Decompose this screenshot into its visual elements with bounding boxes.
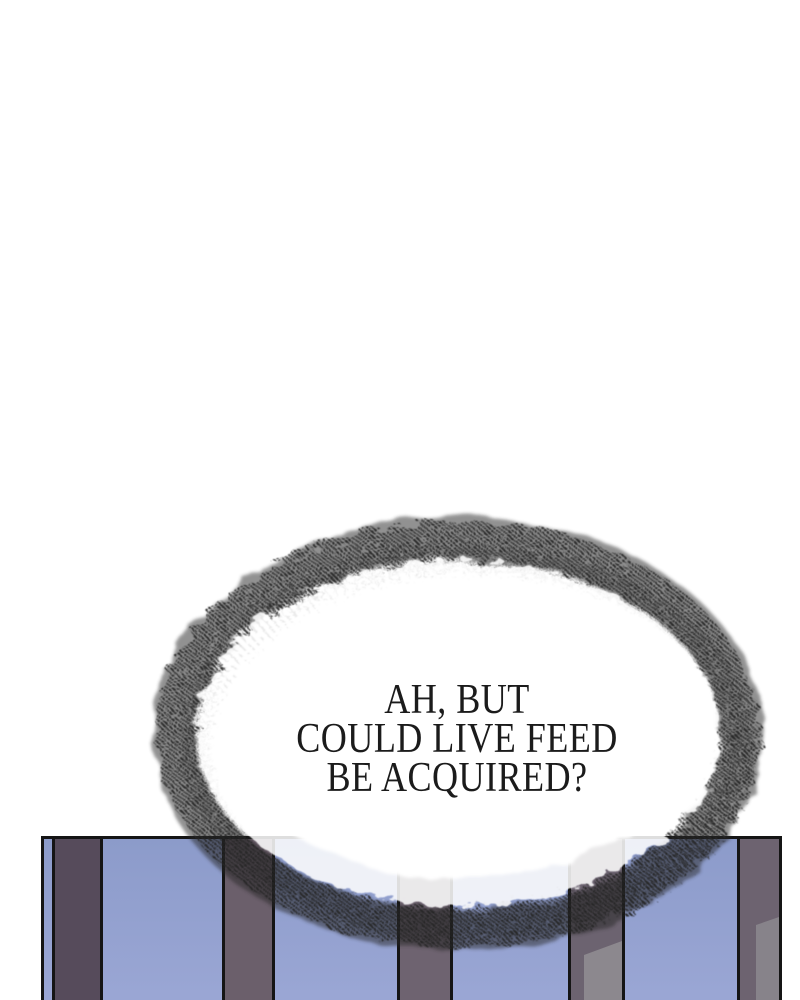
scene-panel	[41, 836, 782, 1000]
pillar-highlight	[756, 917, 779, 1000]
speech-bubble-line: COULD LIVE FEED	[296, 720, 617, 759]
pillar	[52, 839, 103, 1000]
comic-page: AH, BUT COULD LIVE FEED BE ACQUIRED?	[0, 0, 800, 1000]
pillar-highlight	[584, 941, 622, 1000]
pillar	[397, 839, 453, 1000]
speech-bubble-text: AH, BUT COULD LIVE FEED BE ACQUIRED?	[296, 681, 617, 798]
speech-bubble-line: BE ACQUIRED?	[296, 759, 617, 798]
pillar	[737, 839, 782, 1000]
pillar	[568, 839, 625, 1000]
speech-bubble-line: AH, BUT	[296, 681, 617, 720]
pillar	[222, 839, 275, 1000]
